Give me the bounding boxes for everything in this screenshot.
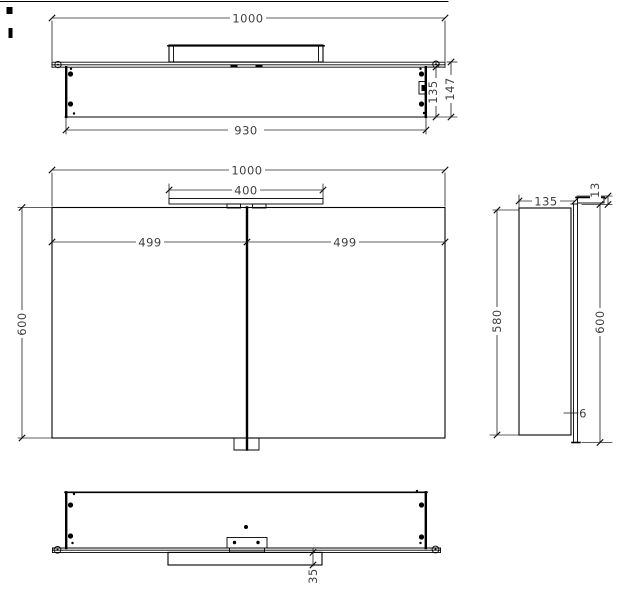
bracket-screw [233,541,236,544]
side-view: 135 13 580 600 6 [490,180,612,446]
screw-icon [244,525,248,529]
dim-label-mirror-thickness: 6 [579,407,587,421]
light-bar-front [169,199,323,205]
pin-dot [70,68,72,70]
screw-icon [419,71,424,76]
dim-label-left-half: 499 [138,236,161,250]
mirror-cabinet-drawing: 1000 135 147 930 1000 [0,0,620,602]
screw-center [57,64,59,66]
edge-mark [9,28,13,38]
top-view: 1000 135 147 930 [49,12,457,138]
screw-center [435,63,437,65]
screw-icon [68,71,73,76]
screw-center [435,549,437,551]
page-edge-marks [0,2,448,39]
screw-icon [68,101,73,106]
screw-center [57,549,59,551]
dim-label-height: 600 [15,312,29,335]
edge-mark [7,7,13,14]
dim-label-light-height: 13 [588,182,602,198]
pin-dot [419,68,421,70]
dim-label-right-half: 499 [333,236,356,250]
dim-label-overall-depth: 147 [443,77,457,100]
dim-label-overall-width: 1000 [232,12,263,26]
pin-dot [423,112,425,114]
cabinet-side-outline [519,208,571,435]
dim-label-depth: 135 [534,195,557,209]
dim-label-overall-width: 1000 [231,164,262,178]
dim-label-body-width: 930 [234,124,257,138]
front-view: 1000 400 499 499 600 [15,164,448,451]
screw-icon [68,533,73,538]
bottom-view: 35 [53,490,441,584]
dim-label-body-depth: 135 [426,80,440,103]
screw-icon [68,502,73,507]
light-fixture-top-outline [169,45,323,62]
screw-icon [419,534,424,539]
pin-dot [73,493,75,495]
screw-icon [419,502,424,507]
pin-dot [419,542,421,544]
bracket-lug [231,65,238,68]
dim-label-mirror-height: 600 [593,310,607,333]
pin-dot [73,112,75,114]
technical-drawing-canvas: 1000 135 147 930 1000 [0,0,620,602]
bracket-lug [256,65,263,68]
dim-label-light-width: 400 [234,184,257,198]
screw-icon [419,101,424,106]
dim-label-light-depth: 35 [306,568,320,584]
pin-dot [416,490,418,492]
bracket-screw [256,541,259,544]
light-fixture-bottom-outline [168,552,322,565]
dim-label-body-height: 580 [490,309,504,332]
pin-dot [71,542,73,544]
